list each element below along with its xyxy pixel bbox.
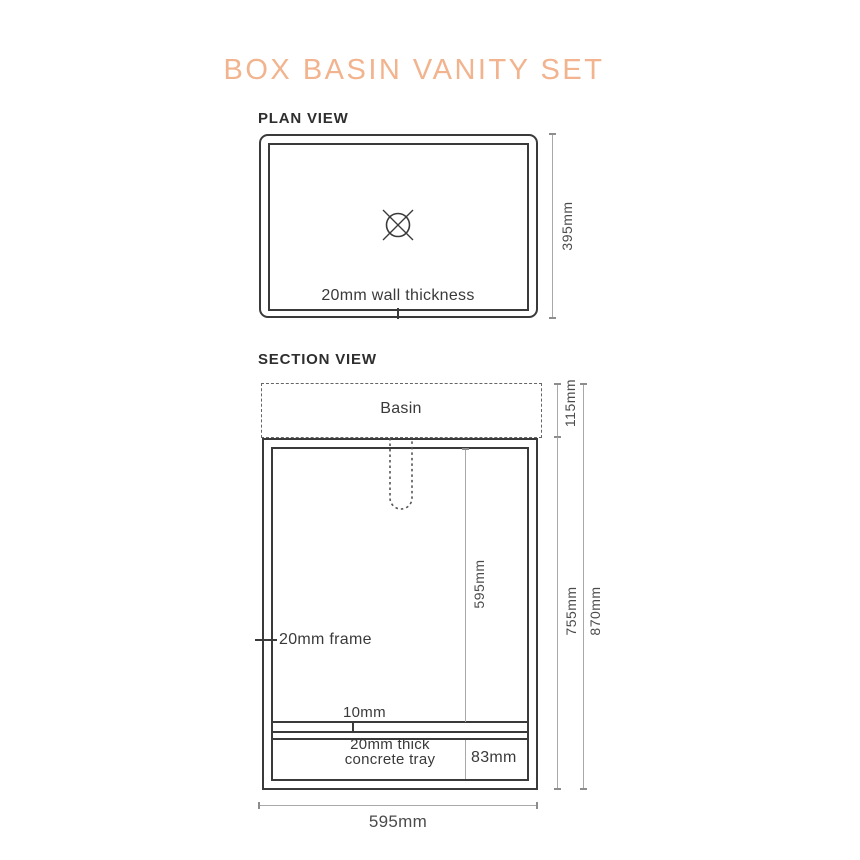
dim-395mm-tick-top: [549, 133, 556, 135]
dim-total-height-tick-top: [580, 383, 587, 385]
dim-total-height-line: [583, 383, 584, 789]
dim-tray-height-line: [465, 740, 466, 779]
dim-inner-height-label: 595mm: [470, 549, 488, 619]
basin-label: Basin: [301, 400, 501, 418]
dim-inner-height-tick: [462, 448, 469, 450]
dim-basin-height-label: 115mm: [561, 368, 579, 438]
dim-basin-height-line: [557, 383, 558, 437]
dim-cabinet-height-line: [557, 437, 558, 789]
tray-label-line2: concrete tray: [345, 751, 436, 768]
drawing-canvas: BOX BASIN VANITY SET PLAN VIEW 20mm wall…: [0, 0, 860, 860]
wall-thickness-label: 20mm wall thickness: [298, 287, 498, 305]
dim-395mm-tick-bottom: [549, 317, 556, 319]
gap-tick: [352, 723, 354, 732]
tray-label: 20mm thick concrete tray: [310, 738, 470, 767]
plan-view-label: PLAN VIEW: [258, 110, 349, 127]
dim-basin-height-tick-top: [554, 383, 561, 385]
frame-leader: [255, 639, 277, 641]
dim-width-line: [258, 805, 538, 806]
dim-total-height-label: 870mm: [586, 576, 604, 646]
page-title: BOX BASIN VANITY SET: [0, 54, 828, 87]
gap-line: [273, 731, 527, 733]
dim-width-tick-right: [536, 802, 538, 809]
section-view-label: SECTION VIEW: [258, 351, 377, 368]
dim-cabinet-height-tick-bottom: [554, 788, 561, 790]
dim-width-label: 595mm: [298, 812, 498, 832]
wall-thickness-leader: [397, 308, 399, 319]
dim-width-tick-left: [258, 802, 260, 809]
drain-icon: [380, 207, 416, 243]
dim-cabinet-height-label: 755mm: [562, 576, 580, 646]
dim-inner-height-line: [465, 448, 466, 722]
gap-label: 10mm: [343, 704, 386, 721]
dim-395mm-line: [552, 134, 553, 318]
frame-label: 20mm frame: [279, 631, 372, 649]
dim-tray-height-label: 83mm: [471, 749, 517, 767]
shelf-line: [273, 721, 527, 723]
dim-total-height-tick-bottom: [580, 788, 587, 790]
drain-pipe-icon: [384, 438, 418, 514]
dim-395mm-label: 395mm: [558, 191, 576, 261]
